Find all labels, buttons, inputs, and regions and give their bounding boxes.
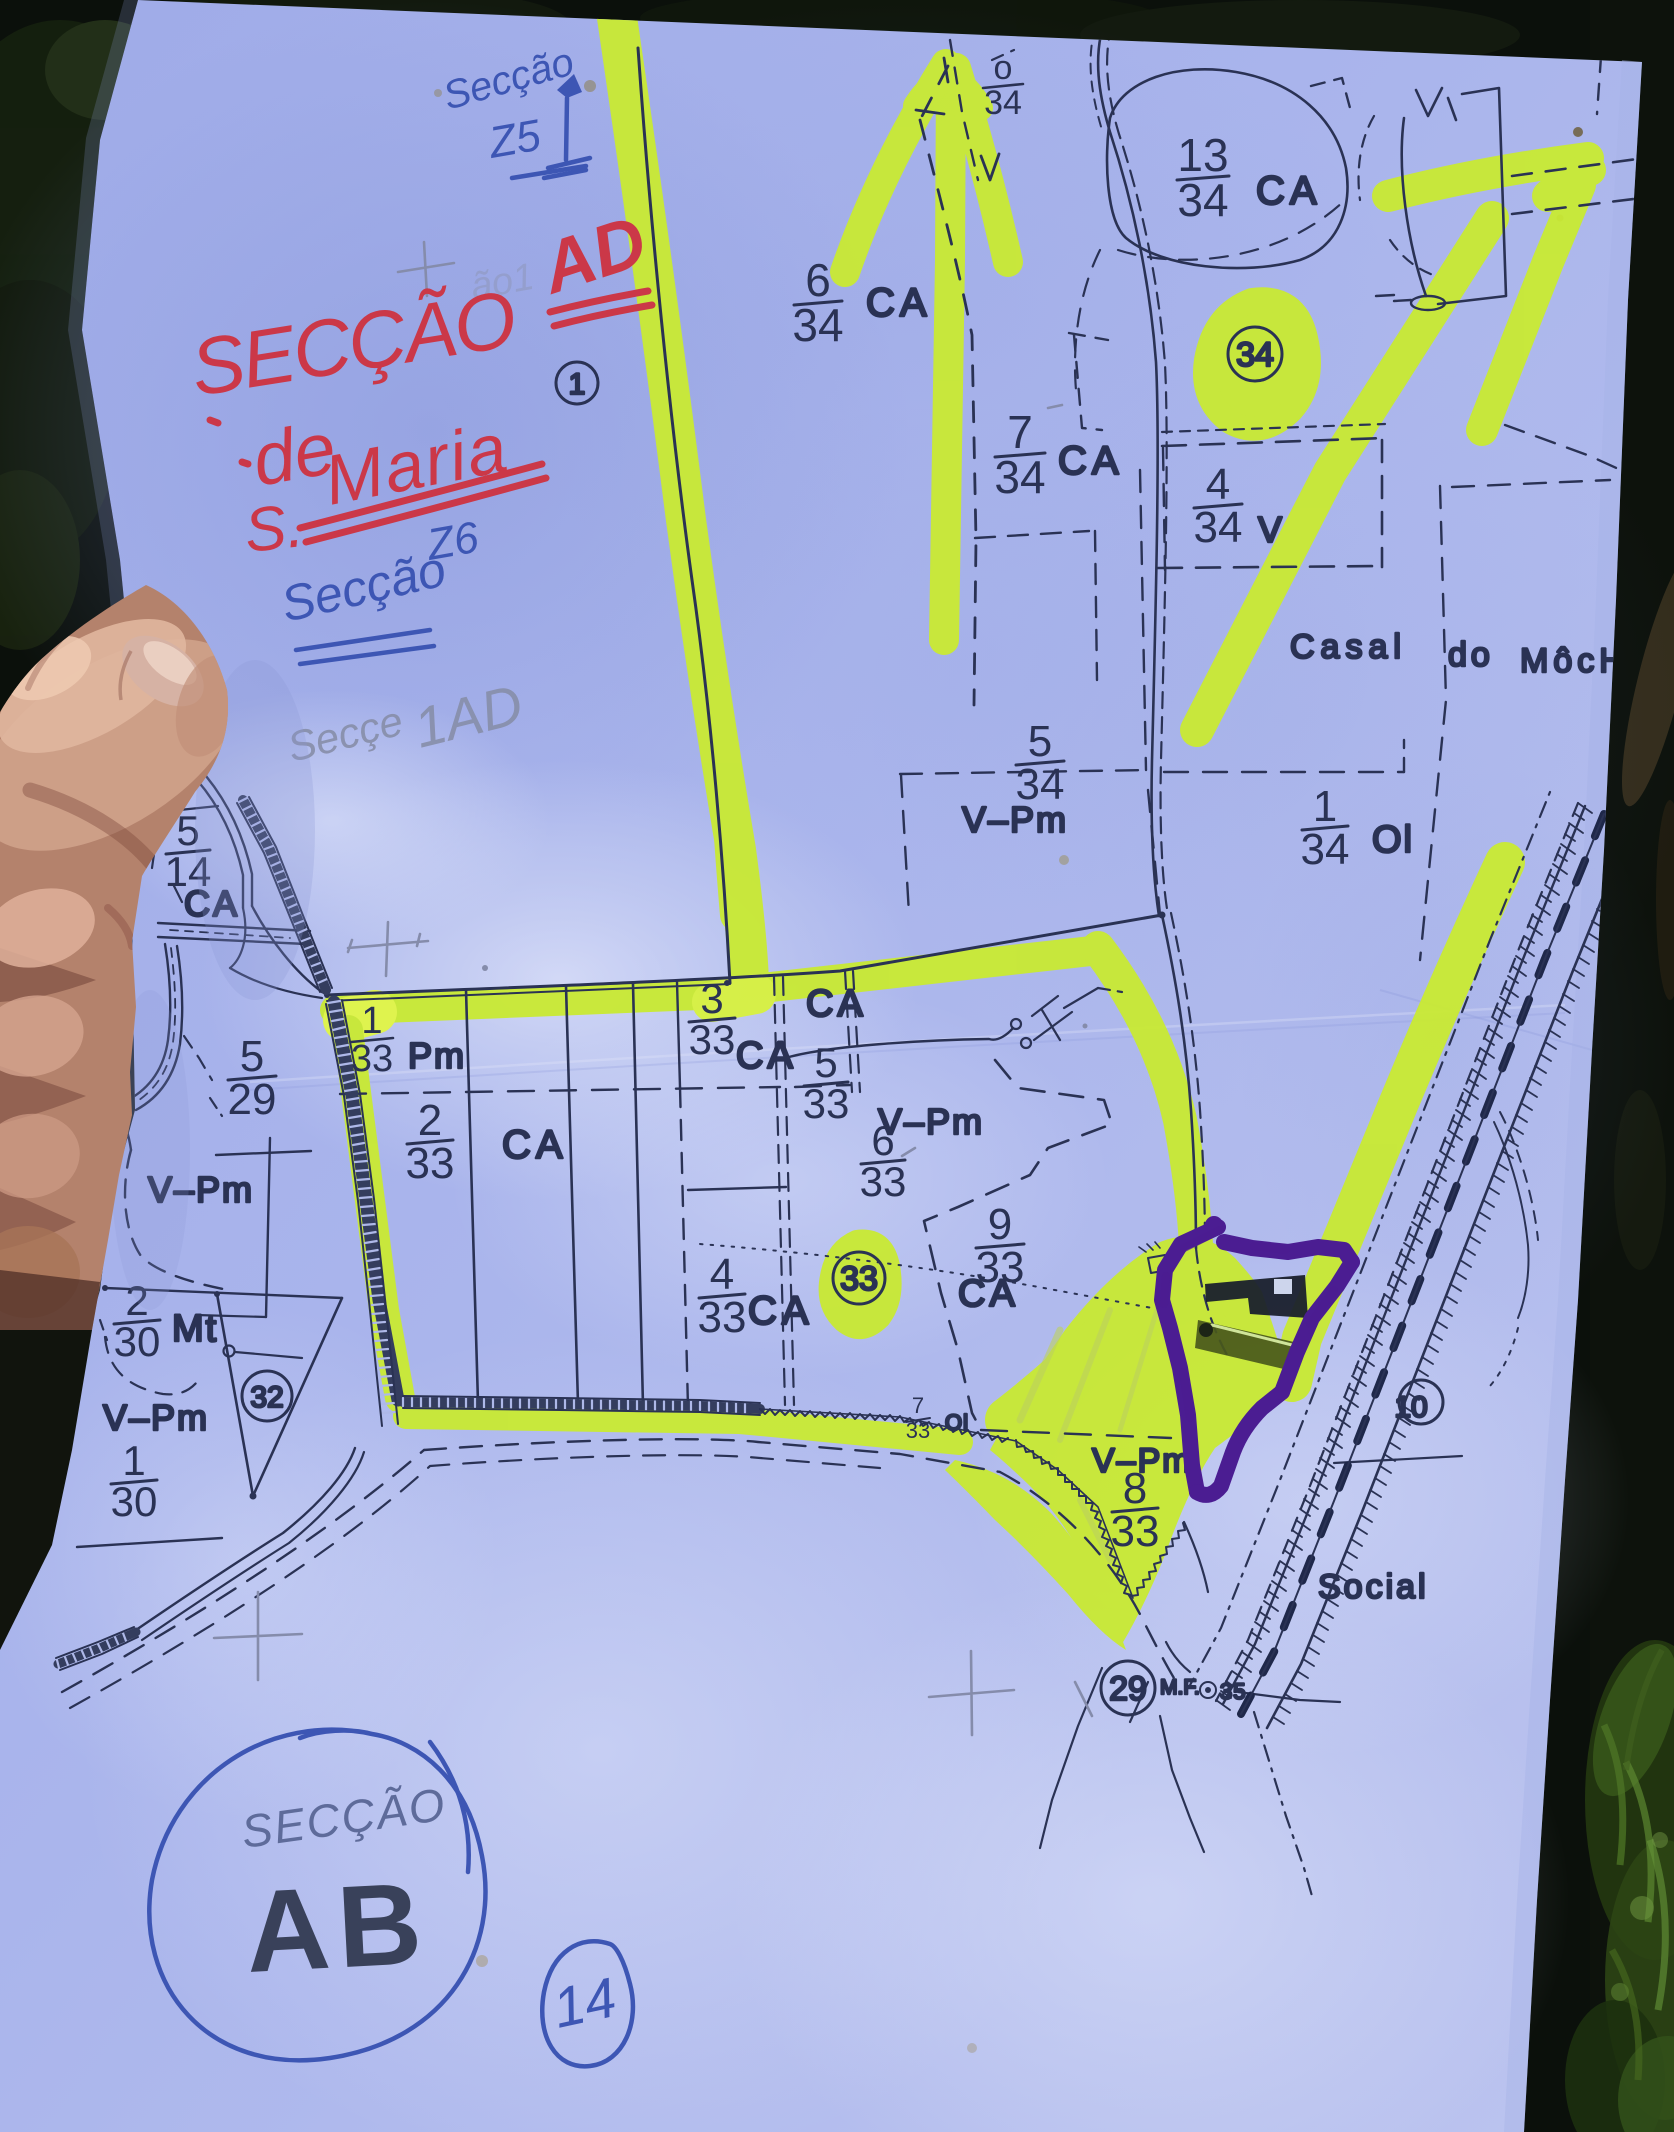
svg-text:M.F.: M.F.: [1160, 1676, 1200, 1699]
svg-text:34: 34: [1194, 503, 1243, 552]
svg-text:30: 30: [111, 1478, 158, 1525]
svg-text:Mt: Mt: [172, 1308, 218, 1350]
svg-text:33: 33: [840, 1260, 878, 1298]
svg-text:34: 34: [1236, 336, 1274, 374]
svg-text:7: 7: [912, 1393, 924, 1418]
svg-text:CA: CA: [748, 1289, 814, 1333]
svg-text:34: 34: [792, 299, 843, 351]
svg-text:5: 5: [1028, 717, 1052, 766]
svg-text:35: 35: [1220, 1679, 1246, 1704]
svg-text:Ol: Ol: [945, 1410, 969, 1435]
svg-text:1: 1: [569, 368, 586, 401]
svg-text:9: 9: [988, 1200, 1012, 1249]
svg-text:29: 29: [1109, 1670, 1147, 1708]
svg-text:V–Pm: V–Pm: [103, 1397, 209, 1438]
svg-text:CA: CA: [502, 1123, 568, 1167]
svg-text:34: 34: [1301, 825, 1350, 874]
svg-text:CA: CA: [806, 983, 867, 1025]
svg-text:Ol: Ol: [1372, 819, 1414, 861]
svg-text:33: 33: [351, 1038, 393, 1080]
svg-text:1: 1: [1313, 782, 1337, 831]
svg-text:10: 10: [1394, 1391, 1427, 1424]
svg-text:33: 33: [689, 1016, 736, 1063]
svg-text:33: 33: [1111, 1507, 1160, 1556]
svg-text:33: 33: [803, 1080, 850, 1127]
svg-text:14: 14: [547, 1965, 621, 2040]
svg-text:V–Pm: V–Pm: [1092, 1442, 1193, 1480]
svg-text:34: 34: [994, 451, 1045, 503]
svg-text:3: 3: [700, 975, 723, 1022]
svg-text:Pm: Pm: [408, 1035, 466, 1076]
svg-text:4: 4: [1206, 460, 1230, 509]
svg-text:CA: CA: [866, 281, 932, 325]
svg-text:2: 2: [418, 1096, 442, 1145]
svg-text:5: 5: [814, 1039, 837, 1086]
svg-text:CA: CA: [1256, 169, 1322, 213]
svg-text:34: 34: [1177, 174, 1228, 226]
svg-text:Casal: Casal: [1290, 628, 1407, 666]
svg-text:32: 32: [250, 1381, 283, 1414]
svg-text:do: do: [1448, 636, 1494, 674]
svg-text:V–Pm: V–Pm: [962, 799, 1068, 840]
svg-text:33: 33: [406, 1139, 455, 1188]
svg-text:CA: CA: [958, 1273, 1019, 1315]
svg-text:1: 1: [122, 1437, 145, 1484]
svg-text:5: 5: [240, 1032, 264, 1081]
svg-text:AB: AB: [243, 1858, 433, 1997]
svg-text:o: o: [994, 49, 1013, 87]
svg-text:33: 33: [860, 1158, 907, 1205]
svg-text:CA: CA: [736, 1035, 797, 1077]
svg-text:Social: Social: [1318, 1568, 1429, 1606]
svg-text:Z5: Z5: [484, 111, 545, 168]
svg-text:29: 29: [228, 1075, 277, 1124]
svg-text:Z6: Z6: [422, 513, 483, 570]
svg-text:30: 30: [114, 1318, 161, 1365]
svg-text:1: 1: [361, 1000, 382, 1042]
svg-text:V: V: [1258, 509, 1282, 550]
svg-text:CA: CA: [1058, 439, 1124, 483]
svg-text:4: 4: [710, 1250, 734, 1299]
svg-text:6: 6: [871, 1117, 894, 1164]
svg-text:33: 33: [698, 1293, 747, 1342]
svg-text:34: 34: [984, 84, 1022, 122]
